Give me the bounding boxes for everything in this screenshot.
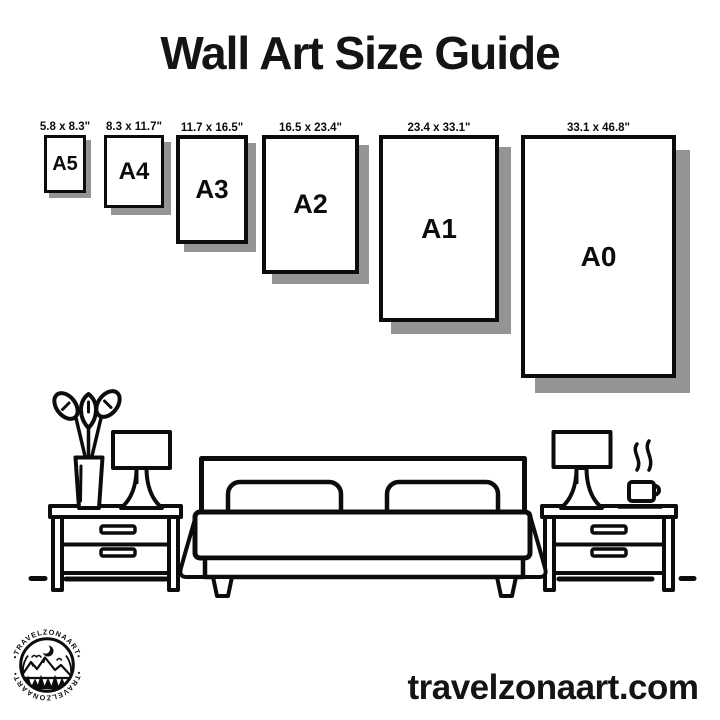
frame-size-label: A4 (119, 158, 150, 186)
frame-dimensions-label: 23.4 x 33.1" (407, 122, 470, 134)
frame-dimensions-label: 5.8 x 8.3" (40, 121, 90, 133)
frame-dimensions-label: 16.5 x 23.4" (279, 122, 342, 134)
size-frame-a1: 23.4 x 33.1" A1 (379, 135, 499, 322)
frame-dimensions-label: 11.7 x 16.5" (181, 122, 243, 134)
frame-size-label: A1 (421, 213, 457, 245)
wall-art-size-guide-poster: Wall Art Size Guide 5.8 x 8.3" A5 8.3 x … (0, 0, 720, 720)
table-lamp-left-icon (113, 432, 170, 508)
website-url: travelzonaart.com (402, 668, 704, 708)
frame-size-label: A5 (52, 153, 78, 176)
bedroom-illustration (0, 380, 720, 615)
size-frame-a3: 11.7 x 16.5" A3 (176, 135, 248, 244)
size-frame-a2: 16.5 x 23.4" A2 (262, 135, 359, 274)
bed-icon (180, 459, 545, 597)
frame-dimensions-label: 8.3 x 11.7" (106, 121, 162, 133)
coffee-cup-icon (619, 441, 661, 507)
frame-size-label: A0 (581, 241, 617, 273)
page-title: Wall Art Size Guide (0, 26, 720, 80)
frame-size-label: A2 (293, 189, 328, 220)
size-frame-a4: 8.3 x 11.7" A4 (104, 135, 164, 208)
frame-size-label: A3 (195, 174, 228, 205)
size-frame-a0: 33.1 x 46.8" A0 (521, 135, 676, 378)
frame-dimensions-label: 33.1 x 46.8" (567, 122, 630, 134)
travelzonaart-logo: •TRAVELZONAART• •TRAVELZONAART• (4, 621, 90, 707)
table-lamp-right-icon (554, 432, 611, 508)
size-frame-a5: 5.8 x 8.3" A5 (44, 135, 86, 193)
